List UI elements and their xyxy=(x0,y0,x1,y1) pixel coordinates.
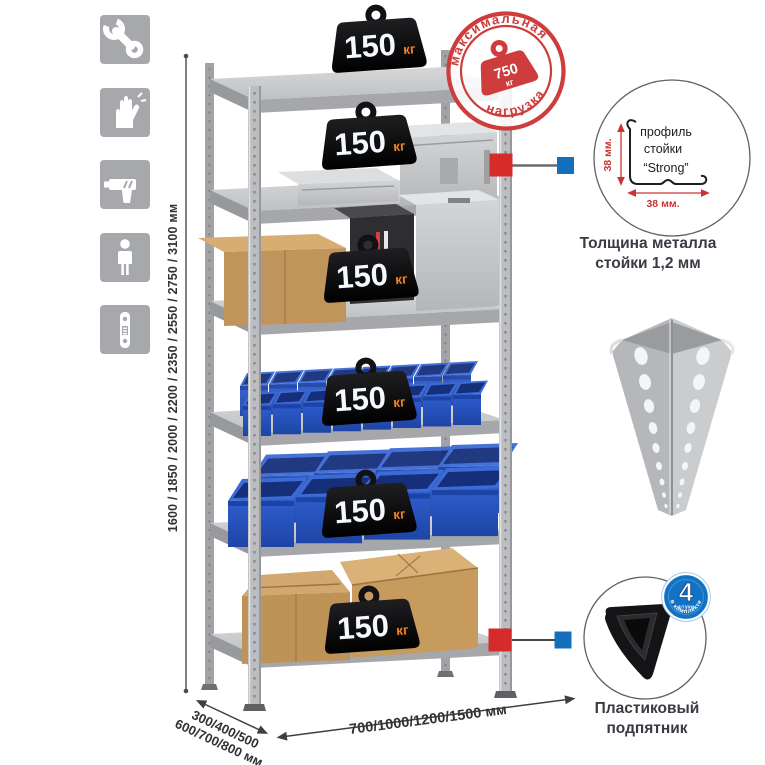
profile-caption-line2: стойки 1,2 мм xyxy=(548,254,748,274)
drill-icon xyxy=(100,160,150,210)
svg-text:кг: кг xyxy=(396,622,410,638)
svg-text:кг: кг xyxy=(395,271,409,287)
rack-post-icon xyxy=(100,305,150,355)
weight-badge-2: 150 кг xyxy=(318,101,417,170)
svg-text:кг: кг xyxy=(393,394,407,410)
height-dimension-label: 1600 / 1850 / 2000 / 2200 / 2350 / 2550 … xyxy=(166,108,180,628)
svg-text:150: 150 xyxy=(336,608,390,647)
profile-caption-line1: Толщина металла xyxy=(548,234,748,254)
foot-caption-line1: Пластиковый xyxy=(547,699,747,719)
svg-text:150: 150 xyxy=(333,492,387,531)
svg-text:38 мм.: 38 мм. xyxy=(646,198,679,210)
infographic-canvas: 150 кг 150 кг 150 кг 150 кг 150 кг 150 к… xyxy=(0,0,765,765)
sidebar-tile-gloves xyxy=(100,88,150,137)
svg-text:38 мм.: 38 мм. xyxy=(602,138,614,171)
blue-marker-top xyxy=(557,157,574,174)
sidebar-tile-post xyxy=(100,305,150,354)
height-dimension-line xyxy=(184,54,189,694)
svg-text:кг: кг xyxy=(393,138,407,154)
profile-caption: Толщина металла стойки 1,2 мм xyxy=(548,234,748,274)
svg-text:“Strong”: “Strong” xyxy=(643,161,688,175)
quantity-badge: 4 штуки в комплекте xyxy=(662,573,711,622)
sidebar-tile-tools xyxy=(100,15,150,64)
sidebar-tile-person xyxy=(100,233,150,282)
svg-text:кг: кг xyxy=(403,41,417,57)
person-icon xyxy=(100,233,150,283)
foot-caption-line2: подпятник xyxy=(547,719,747,739)
svg-text:150: 150 xyxy=(335,257,389,296)
svg-text:кг: кг xyxy=(393,506,407,522)
svg-text:4: 4 xyxy=(679,577,694,607)
profile-detail-circle: 38 мм. 38 мм. профиль стойки “Strong” xyxy=(594,80,750,236)
foot-caption: Пластиковый подпятник xyxy=(547,699,747,739)
sidebar-tile-drill xyxy=(100,160,150,209)
foot-detail-circle: 4 штуки в комплекте xyxy=(584,573,710,699)
svg-text:150: 150 xyxy=(343,27,397,66)
wrench-icon xyxy=(100,15,150,65)
callout-connector-top xyxy=(490,154,575,177)
weight-badge-1: 150 кг xyxy=(328,4,427,73)
red-marker-bottom xyxy=(489,629,512,652)
max-load-stamp: максимальная нагрузка 750 кг xyxy=(433,0,577,143)
svg-text:стойки: стойки xyxy=(644,142,682,156)
blue-marker-bottom xyxy=(555,632,572,649)
callout-connector-bottom xyxy=(489,629,572,652)
post-profile-image xyxy=(611,318,733,516)
svg-text:150: 150 xyxy=(333,124,387,163)
red-marker-top xyxy=(490,154,513,177)
svg-text:150: 150 xyxy=(333,380,387,419)
svg-text:профиль: профиль xyxy=(640,125,692,139)
gloves-icon xyxy=(100,88,150,138)
